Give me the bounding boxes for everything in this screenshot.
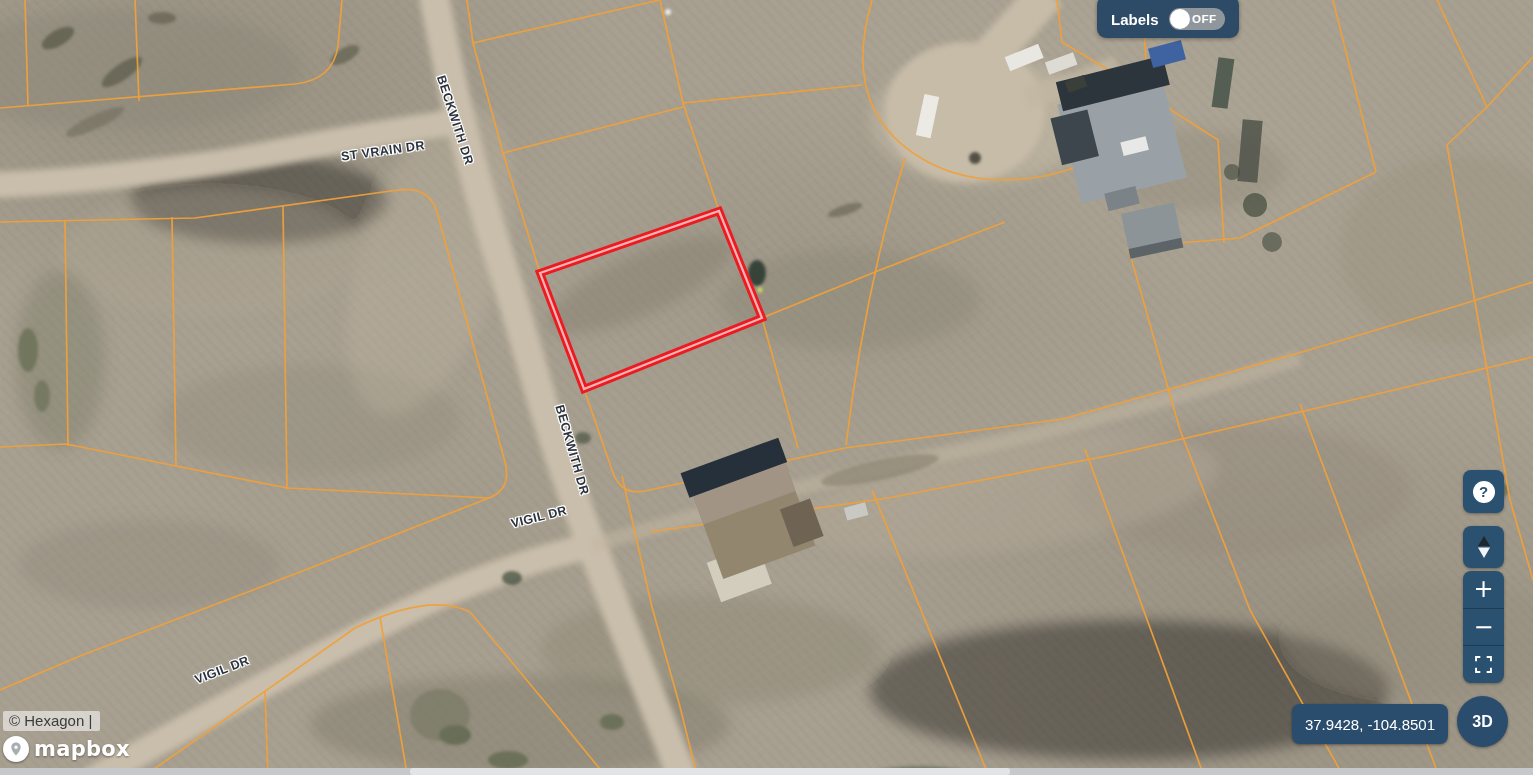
fullscreen-icon xyxy=(1475,656,1492,673)
zoom-in-button[interactable]: + xyxy=(1463,571,1504,608)
labels-panel: Labels OFF xyxy=(1097,0,1239,38)
compass-icon xyxy=(1475,535,1493,559)
horizontal-scrollbar[interactable] xyxy=(0,768,1533,775)
map-attribution: © Hexagon | xyxy=(3,711,100,731)
coordinates-readout: 37.9428, -104.8501 xyxy=(1292,704,1448,744)
trailer xyxy=(1212,57,1235,109)
mapbox-logo[interactable]: mapbox xyxy=(3,736,130,762)
shed xyxy=(1121,202,1183,258)
compass-button[interactable] xyxy=(1463,526,1504,568)
labels-toggle-label: Labels xyxy=(1111,11,1159,28)
toggle-state-text: OFF xyxy=(1192,13,1217,25)
fullscreen-button[interactable] xyxy=(1463,645,1504,683)
yard-debris xyxy=(1262,232,1282,252)
labels-toggle[interactable]: OFF xyxy=(1169,8,1225,30)
mapbox-logo-text: mapbox xyxy=(34,737,130,761)
scrollbar-thumb[interactable] xyxy=(410,768,1010,775)
blue-tarp xyxy=(1148,40,1186,68)
vehicle-van2 xyxy=(1045,52,1078,74)
mapbox-pin-icon xyxy=(3,736,29,762)
yard-debris xyxy=(1224,164,1240,180)
view-3d-button[interactable]: 3D xyxy=(1457,696,1508,747)
toggle-knob-icon xyxy=(1170,9,1190,29)
zoom-controls: + − xyxy=(1463,571,1504,683)
map-app-window: ST VRAIN DR BECKWITH DR BECKWITH DR VIGI… xyxy=(0,0,1533,775)
zoom-out-button[interactable]: − xyxy=(1463,608,1504,646)
yard-debris xyxy=(1243,193,1267,217)
help-button[interactable]: ? xyxy=(1463,470,1504,513)
help-icon: ? xyxy=(1473,481,1495,503)
